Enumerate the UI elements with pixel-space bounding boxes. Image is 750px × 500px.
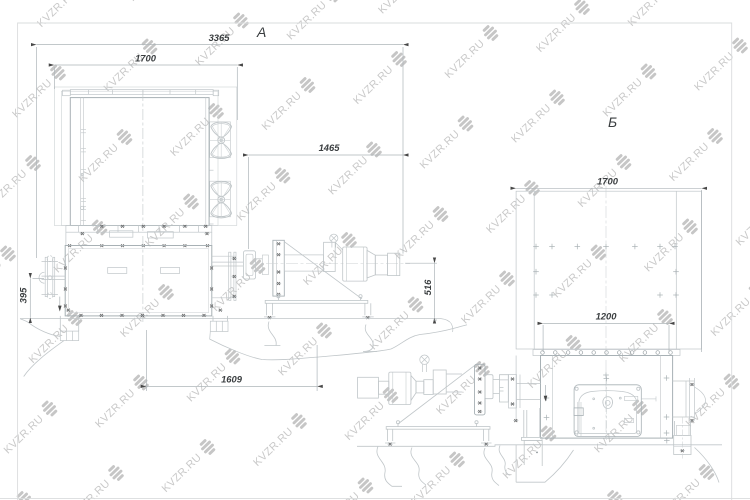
svg-text:1700: 1700 xyxy=(135,53,157,64)
svg-text:516: 516 xyxy=(422,279,433,295)
svg-text:А: А xyxy=(256,24,266,40)
svg-text:395: 395 xyxy=(18,287,29,303)
svg-text:3365: 3365 xyxy=(209,32,231,43)
svg-text:1700: 1700 xyxy=(597,176,619,187)
svg-text:Б: Б xyxy=(608,114,617,130)
svg-text:1609: 1609 xyxy=(221,374,243,385)
svg-text:1200: 1200 xyxy=(596,311,618,322)
svg-text:1465: 1465 xyxy=(319,142,341,153)
